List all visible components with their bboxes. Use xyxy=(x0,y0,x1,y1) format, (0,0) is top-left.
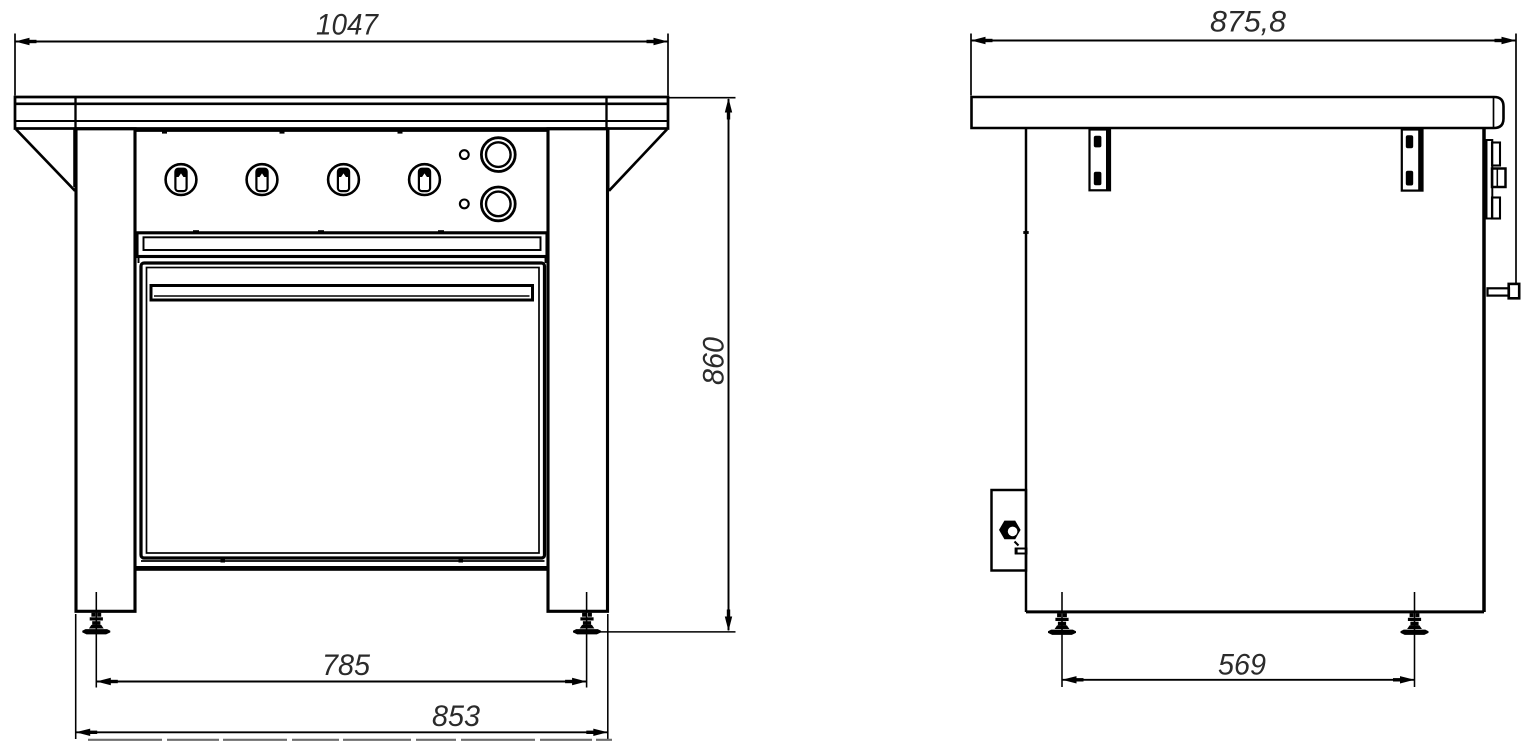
svg-text:875,8: 875,8 xyxy=(1210,6,1286,39)
svg-text:1047: 1047 xyxy=(316,9,379,42)
svg-text:569: 569 xyxy=(1218,649,1266,682)
svg-text:860: 860 xyxy=(698,337,731,385)
svg-text:853: 853 xyxy=(432,700,480,733)
svg-text:785: 785 xyxy=(322,649,370,682)
